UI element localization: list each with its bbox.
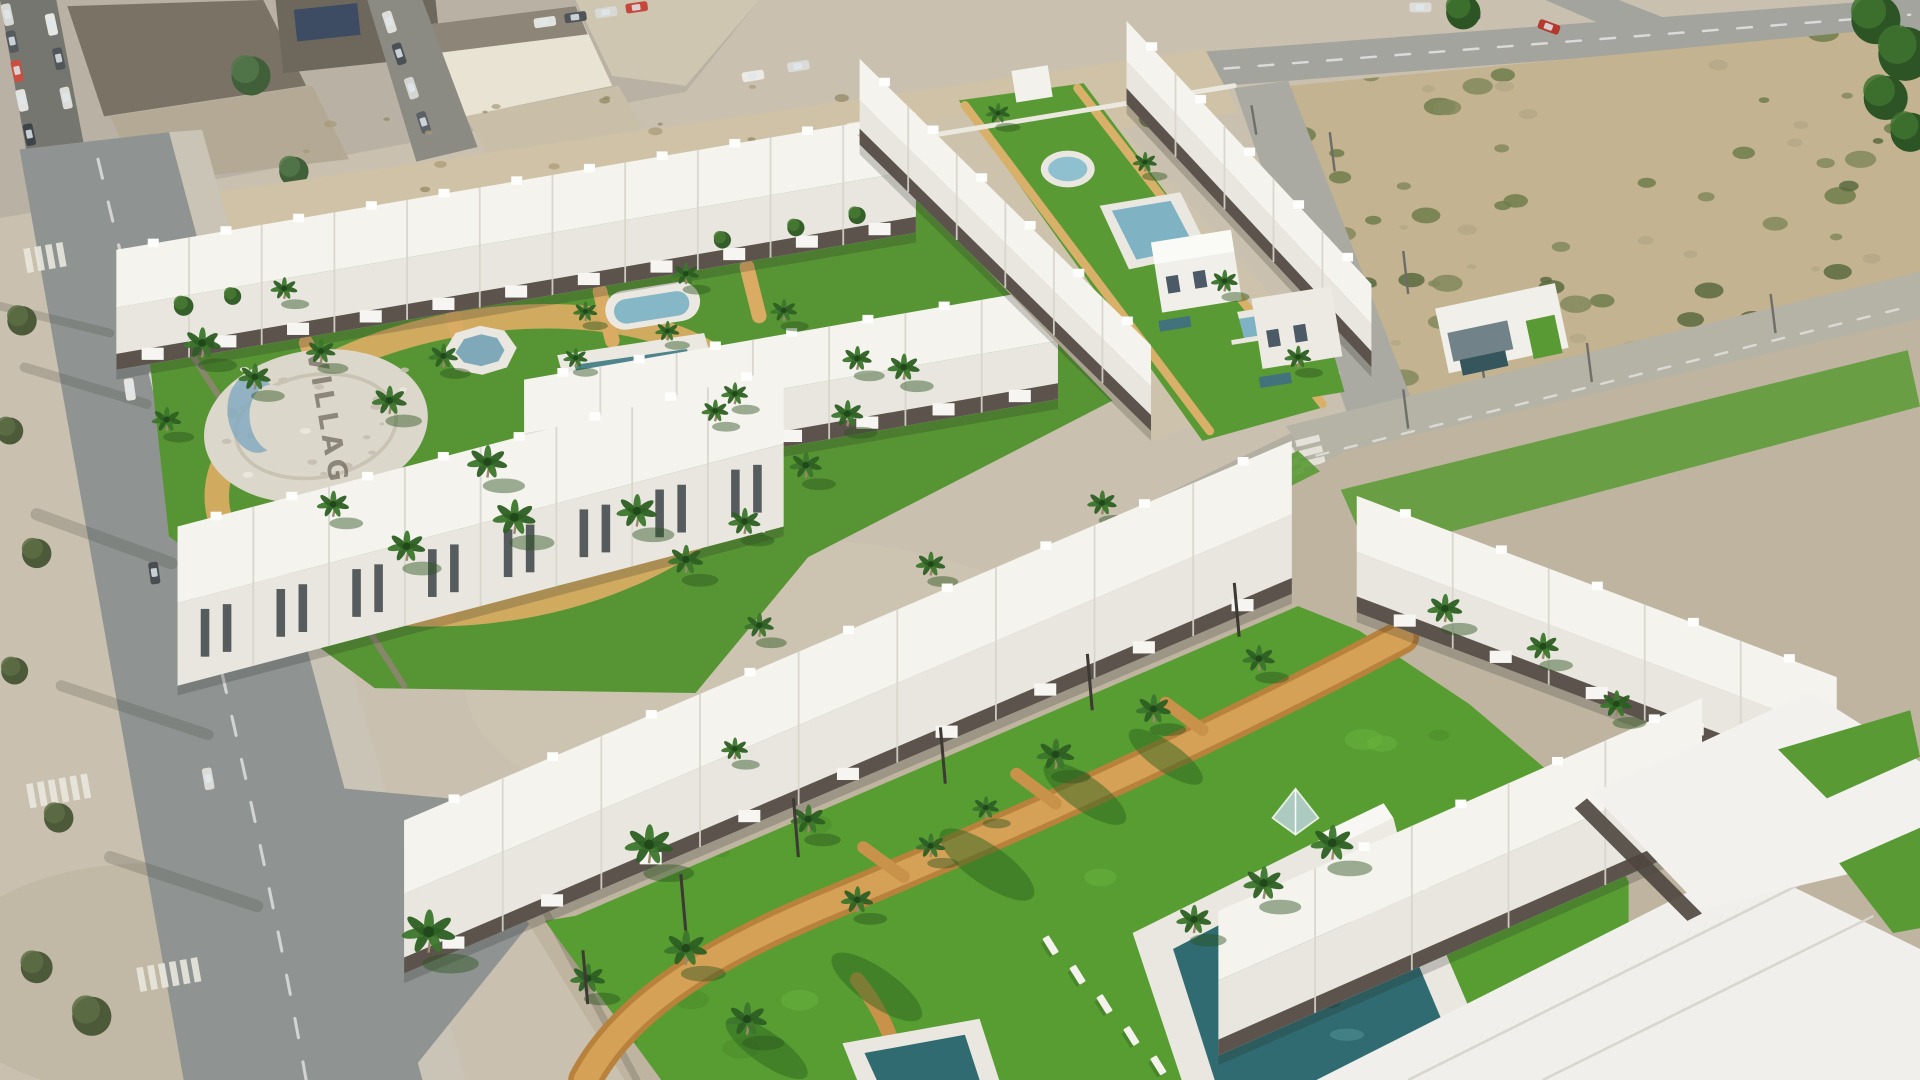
screenshot-root: Aerial render - coastal residential deve…	[0, 0, 1920, 1080]
aerial-development-render: Aerial render - coastal residential deve…	[0, 0, 1920, 1080]
